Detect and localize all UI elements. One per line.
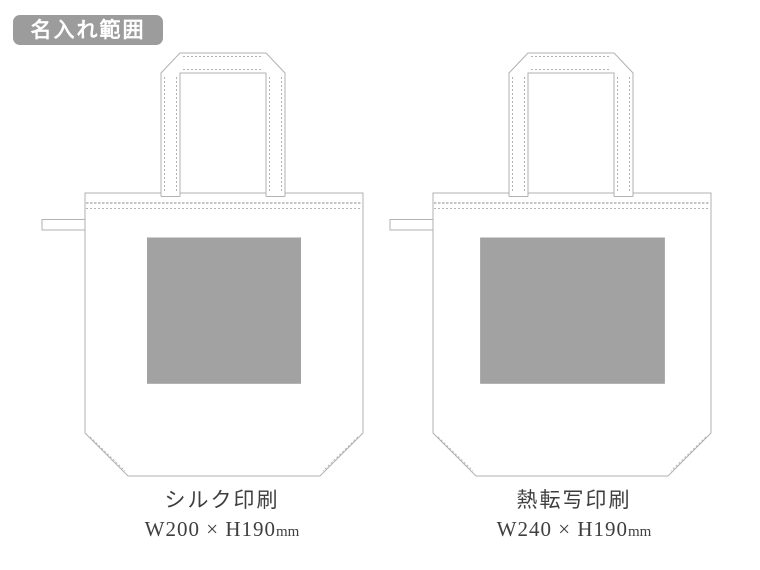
- thermal-transfer-bag: [390, 53, 711, 476]
- print-size-label: W200 × H190mm: [72, 515, 372, 546]
- size-unit: mm: [628, 524, 651, 540]
- side-tab: [42, 220, 85, 231]
- size-value: W240 × H190: [497, 517, 628, 541]
- size-unit: mm: [276, 524, 299, 540]
- handle-inner-edge: [180, 73, 266, 197]
- silk-print-bag: [42, 53, 363, 476]
- handle-stitching: [513, 57, 630, 194]
- print-area-rect: [480, 238, 665, 384]
- side-tab: [390, 220, 433, 231]
- print-method-label: シルク印刷: [72, 486, 372, 514]
- handle-stitching: [165, 57, 282, 194]
- print-area-rect: [147, 238, 301, 384]
- print-area-diagram: 名入れ範囲: [0, 0, 760, 570]
- handle-inner-edge: [528, 73, 614, 197]
- tote-bag-diagrams: [0, 0, 760, 570]
- thermal-transfer-caption: 熱転写印刷 W240 × H190mm: [424, 486, 724, 546]
- silk-print-caption: シルク印刷 W200 × H190mm: [72, 486, 372, 546]
- print-method-label: 熱転写印刷: [424, 486, 724, 514]
- size-value: W200 × H190: [145, 517, 276, 541]
- print-size-label: W240 × H190mm: [424, 515, 724, 546]
